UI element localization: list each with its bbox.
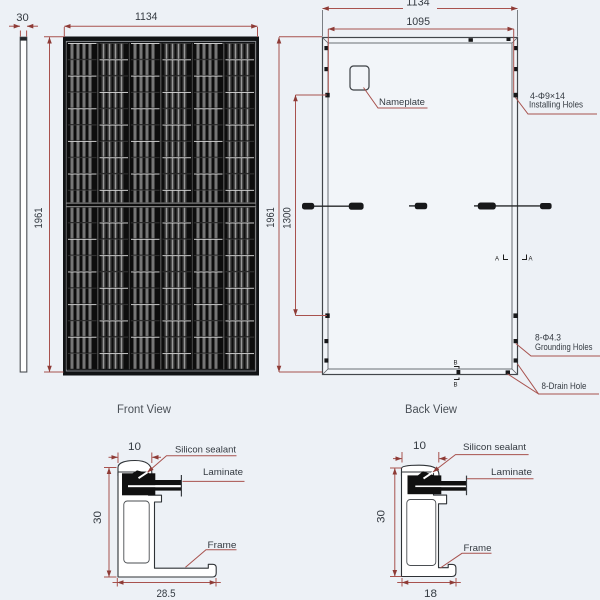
svg-text:1134: 1134 xyxy=(135,11,157,23)
svg-text:B: B xyxy=(454,383,458,389)
svg-text:Laminate: Laminate xyxy=(491,467,532,478)
svg-text:1134: 1134 xyxy=(406,0,429,8)
svg-text:28.5: 28.5 xyxy=(157,588,176,600)
svg-text:A: A xyxy=(529,257,533,263)
svg-text:Silicon sealant: Silicon sealant xyxy=(175,445,236,456)
svg-text:B: B xyxy=(454,361,458,367)
svg-text:Front View: Front View xyxy=(117,404,172,416)
svg-text:30: 30 xyxy=(92,511,104,524)
svg-text:10: 10 xyxy=(413,440,426,452)
svg-text:Frame: Frame xyxy=(208,540,237,551)
svg-text:30: 30 xyxy=(16,12,29,24)
svg-text:18: 18 xyxy=(424,588,437,600)
svg-text:1961: 1961 xyxy=(265,207,277,228)
svg-text:A: A xyxy=(495,257,499,263)
svg-text:1095: 1095 xyxy=(406,16,430,28)
svg-text:8-Drain Hole: 8-Drain Hole xyxy=(542,381,587,392)
svg-text:Nameplate: Nameplate xyxy=(379,97,425,108)
svg-text:Frame: Frame xyxy=(464,543,492,554)
svg-text:Silicon sealant: Silicon sealant xyxy=(463,442,526,453)
svg-text:Installing Holes: Installing Holes xyxy=(529,100,583,111)
svg-text:10: 10 xyxy=(128,441,141,453)
svg-text:Grounding Holes: Grounding Holes xyxy=(535,342,593,353)
svg-text:Laminate: Laminate xyxy=(203,467,243,478)
svg-text:30: 30 xyxy=(376,510,388,523)
svg-text:1961: 1961 xyxy=(33,208,45,229)
svg-text:Back View: Back View xyxy=(405,404,458,416)
svg-text:1300: 1300 xyxy=(282,207,294,229)
